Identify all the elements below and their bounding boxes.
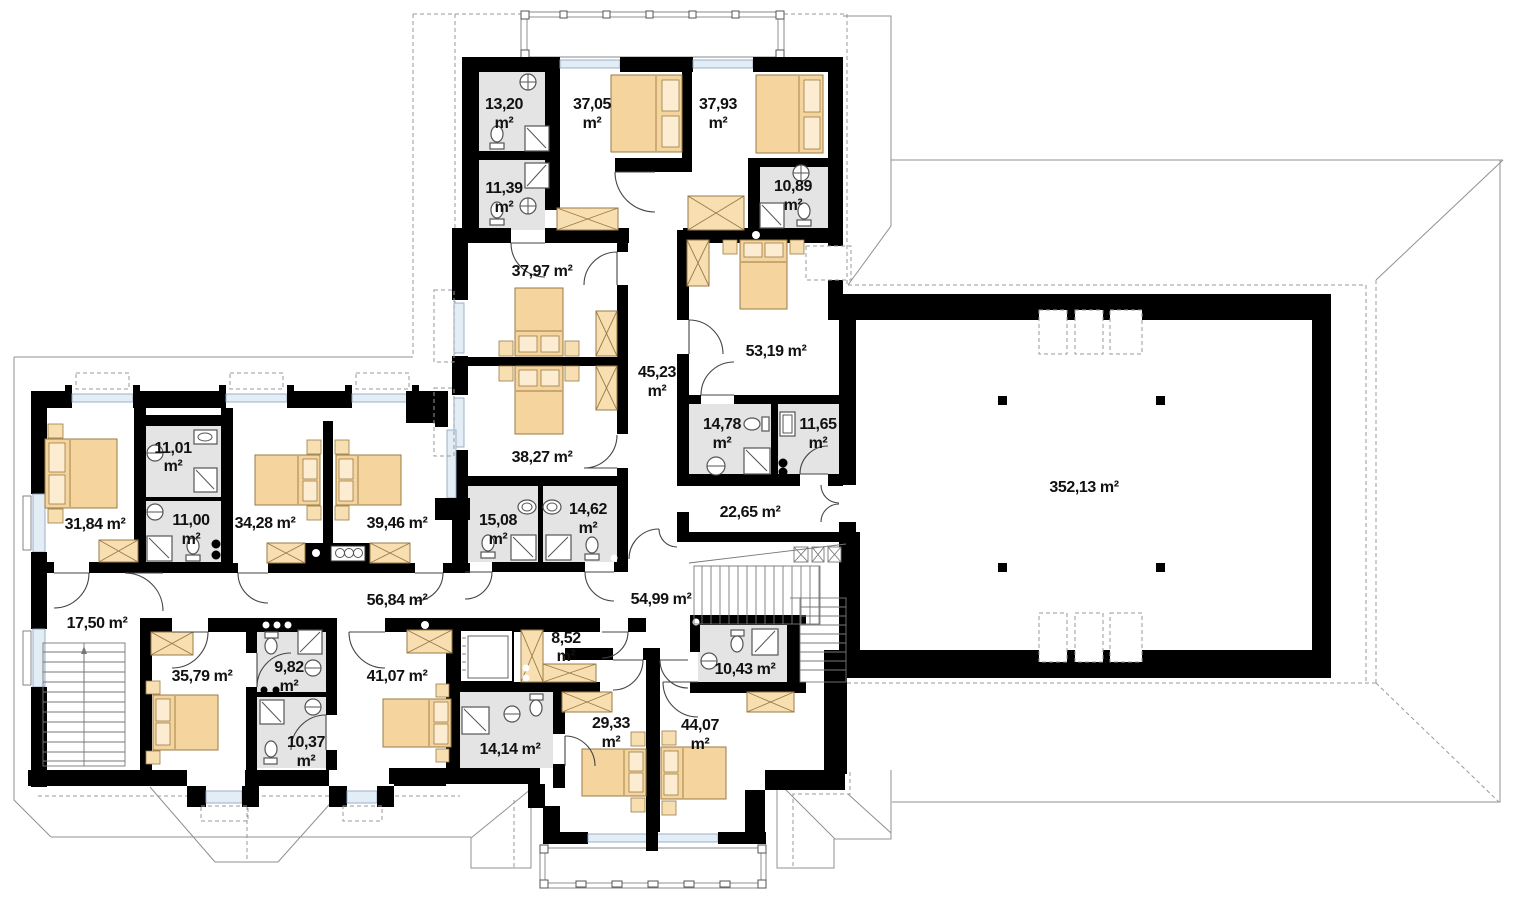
svg-text:m²: m² xyxy=(691,736,710,753)
svg-text:34,28 m²: 34,28 m² xyxy=(235,515,296,532)
svg-text:11,65: 11,65 xyxy=(799,416,837,433)
svg-text:m²: m² xyxy=(495,199,514,216)
svg-text:m²: m² xyxy=(182,531,201,548)
svg-text:38,27 m²: 38,27 m² xyxy=(512,449,573,466)
svg-text:10,37: 10,37 xyxy=(287,734,326,751)
svg-text:11,00: 11,00 xyxy=(172,512,210,529)
svg-text:m²: m² xyxy=(297,753,316,770)
svg-text:37,05: 37,05 xyxy=(573,96,612,113)
svg-text:54,99 m²: 54,99 m² xyxy=(631,591,692,608)
svg-text:m²: m² xyxy=(602,734,621,751)
svg-text:29,33: 29,33 xyxy=(592,715,631,732)
svg-text:m²: m² xyxy=(648,383,667,400)
svg-text:39,46 m²: 39,46 m² xyxy=(367,515,428,532)
svg-text:31,84 m²: 31,84 m² xyxy=(65,516,126,533)
svg-text:14,14 m²: 14,14 m² xyxy=(480,741,541,758)
svg-text:22,65 m²: 22,65 m² xyxy=(720,504,781,521)
svg-text:m²: m² xyxy=(280,678,299,695)
svg-text:m²: m² xyxy=(583,115,602,132)
svg-text:15,08: 15,08 xyxy=(479,512,518,529)
svg-text:10,43 m²: 10,43 m² xyxy=(715,661,776,678)
svg-text:44,07: 44,07 xyxy=(681,717,720,734)
svg-text:37,93: 37,93 xyxy=(699,96,738,113)
svg-text:11,39: 11,39 xyxy=(485,180,523,197)
svg-text:35,79 m²: 35,79 m² xyxy=(172,668,233,685)
svg-text:41,07 m²: 41,07 m² xyxy=(367,668,428,685)
svg-text:m²: m² xyxy=(784,197,803,214)
svg-text:m²: m² xyxy=(489,531,508,548)
svg-text:37,97 m²: 37,97 m² xyxy=(512,263,573,280)
svg-text:10,89: 10,89 xyxy=(774,178,813,195)
svg-text:m²: m² xyxy=(709,115,728,132)
svg-text:45,23: 45,23 xyxy=(638,364,677,381)
svg-text:m²: m² xyxy=(713,435,732,452)
svg-text:m²: m² xyxy=(557,648,576,665)
svg-text:53,19 m²: 53,19 m² xyxy=(746,343,807,360)
svg-text:m²: m² xyxy=(495,115,514,132)
svg-text:17,50 m²: 17,50 m² xyxy=(67,615,128,632)
svg-text:8,52: 8,52 xyxy=(551,630,581,647)
svg-text:14,62: 14,62 xyxy=(569,501,608,518)
svg-text:9,82: 9,82 xyxy=(274,659,304,676)
svg-text:m²: m² xyxy=(579,520,598,537)
svg-text:11,01: 11,01 xyxy=(154,440,192,457)
svg-text:14,78: 14,78 xyxy=(703,416,742,433)
svg-text:352,13 m²: 352,13 m² xyxy=(1049,479,1118,496)
svg-text:56,84 m²: 56,84 m² xyxy=(367,592,428,609)
svg-text:m²: m² xyxy=(164,458,183,475)
svg-text:m²: m² xyxy=(809,435,828,452)
svg-text:13,20: 13,20 xyxy=(485,96,524,113)
